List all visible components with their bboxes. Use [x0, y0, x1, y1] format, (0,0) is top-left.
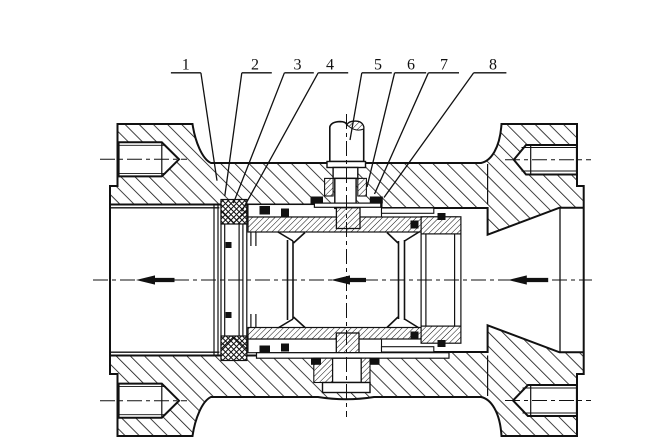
svg-text:2: 2 [251, 57, 259, 74]
svg-text:4: 4 [326, 57, 334, 74]
svg-text:5: 5 [374, 57, 382, 74]
svg-text:8: 8 [489, 57, 497, 74]
svg-text:6: 6 [407, 57, 415, 74]
svg-text:7: 7 [440, 57, 448, 74]
svg-text:1: 1 [182, 57, 190, 74]
svg-text:3: 3 [294, 57, 302, 74]
